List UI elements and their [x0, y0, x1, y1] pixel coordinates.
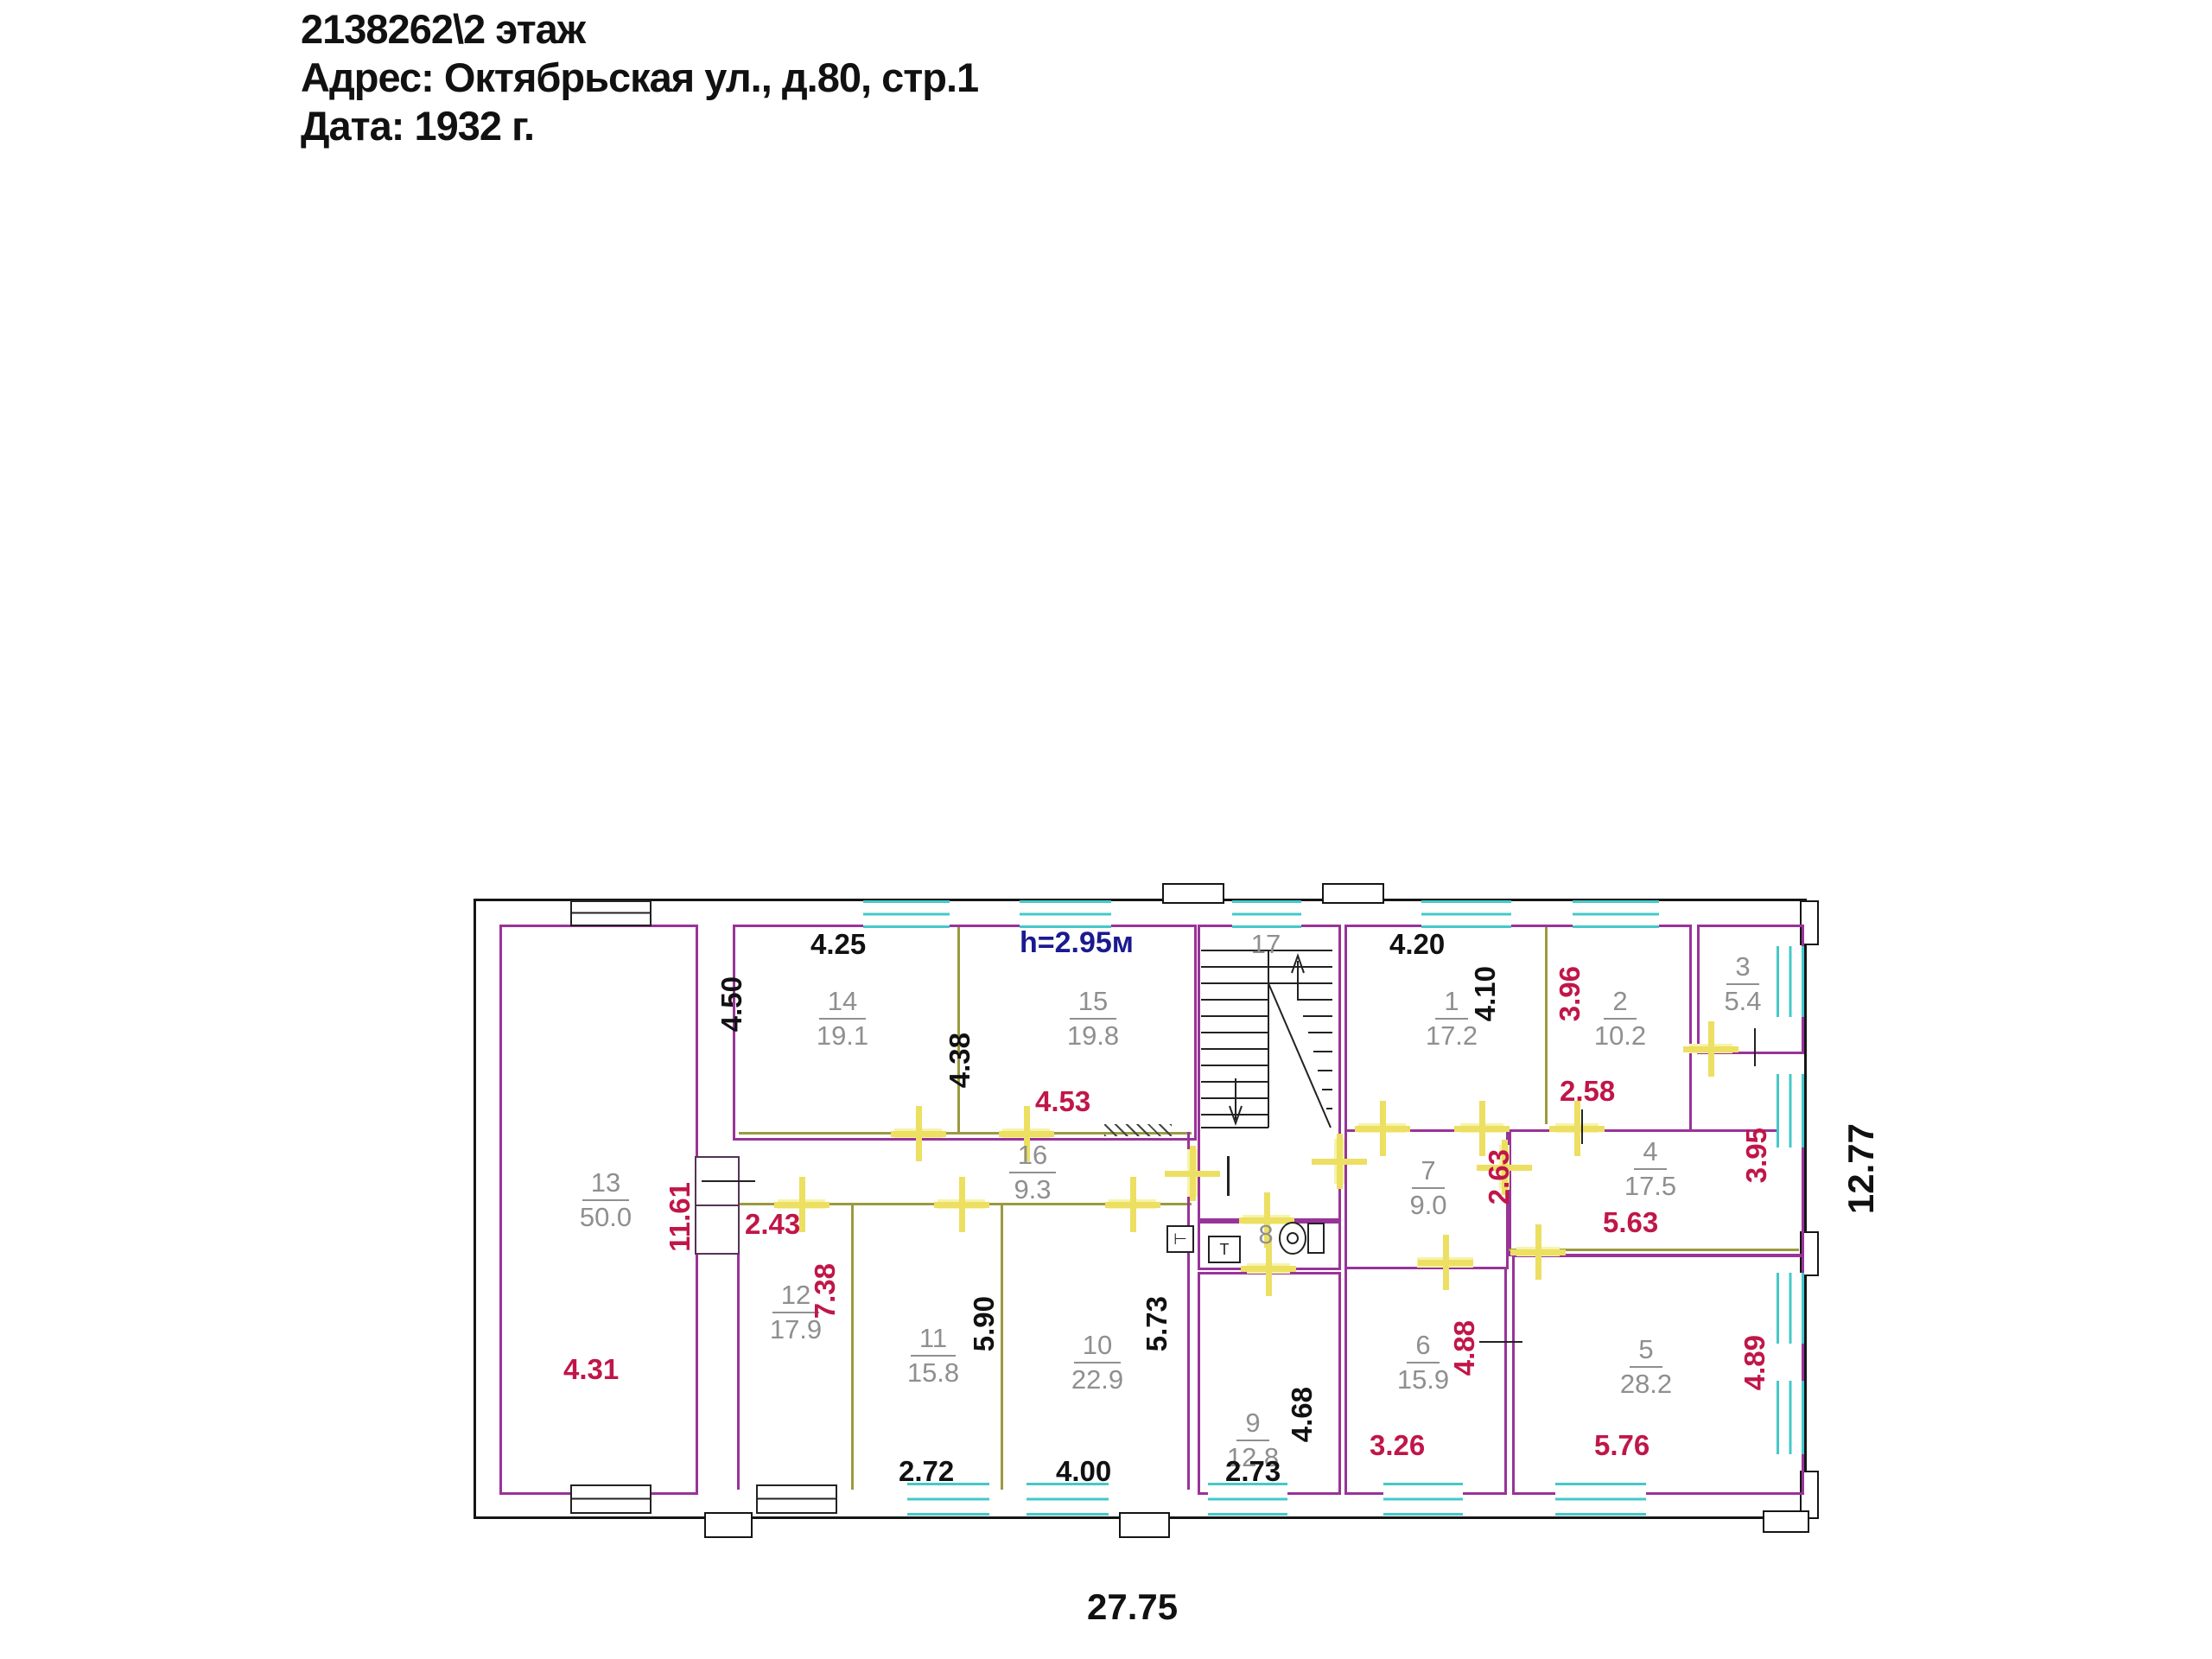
- room-label-16: 16 9.3: [985, 1141, 1080, 1205]
- dim-r15-bottom: 4.53: [1035, 1085, 1090, 1118]
- wall-notch: [704, 1512, 753, 1538]
- dim-r11-bottom: 2.72: [899, 1455, 954, 1488]
- dim-r13-width: 4.31: [563, 1353, 619, 1386]
- window: [756, 1484, 837, 1514]
- room-label-14: 14 19.1: [795, 987, 890, 1051]
- dim-r15-left: 4.38: [944, 1033, 976, 1088]
- plan-title: 2138262\2 этаж: [301, 5, 978, 54]
- window: [1777, 1074, 1804, 1147]
- window: [1232, 900, 1301, 928]
- plan-header: 2138262\2 этаж Адрес: Октябрьская ул., д…: [301, 5, 978, 150]
- door-opening: [1334, 1139, 1344, 1184]
- dim-r1-right: 4.10: [1469, 966, 1502, 1021]
- room-label-17: 17: [1218, 930, 1313, 961]
- fixture-icon: ⊢: [1166, 1225, 1194, 1253]
- hatched-wall: [1104, 1124, 1172, 1136]
- dim-r9-right: 4.68: [1286, 1387, 1319, 1442]
- dim-r9-bottom: 2.73: [1225, 1455, 1281, 1488]
- dim-r14-top: 4.25: [810, 928, 866, 961]
- window: [570, 1484, 652, 1514]
- door-opening: [1247, 1263, 1290, 1274]
- dimension-tick: [702, 1180, 755, 1182]
- window: [1573, 900, 1659, 928]
- dim-r2-left: 3.96: [1554, 966, 1586, 1021]
- partition-11-10: [1001, 1203, 1003, 1490]
- dim-r6-left: 4.88: [1448, 1320, 1481, 1376]
- door-opening: [1187, 1149, 1198, 1197]
- window: [570, 900, 652, 926]
- dim-r5-bottom: 5.76: [1594, 1429, 1649, 1462]
- partition-14-15: [957, 927, 960, 1133]
- dim-r4-right: 3.95: [1740, 1128, 1773, 1183]
- dim-r14-left: 4.50: [715, 976, 748, 1032]
- door-opening: [1417, 1257, 1473, 1268]
- ceiling-height-note: h=2.95м: [1020, 926, 1134, 960]
- door-opening: [938, 1199, 985, 1209]
- dim-r4-bottom: 5.63: [1603, 1206, 1658, 1239]
- wall-notch: [1119, 1512, 1170, 1538]
- room-label-15: 15 19.8: [1046, 987, 1141, 1051]
- window: [1383, 1483, 1463, 1516]
- room-label-3: 3 5.4: [1695, 952, 1790, 1016]
- door-opening: [1460, 1123, 1503, 1133]
- window: [1555, 1483, 1646, 1516]
- wall-pilaster: [1162, 883, 1224, 904]
- floor-plan-page: { "header": { "title": "2138262\\2 этаж"…: [0, 0, 2212, 1659]
- dim-r5-right: 4.89: [1738, 1335, 1771, 1390]
- room-label-8: 8: [1218, 1220, 1313, 1251]
- window: [1777, 1273, 1804, 1344]
- room-label-7: 7 9.0: [1381, 1156, 1476, 1220]
- door-opening: [1689, 1044, 1732, 1053]
- dim-r10-bottom: 4.00: [1056, 1455, 1111, 1488]
- room-label-2: 2 10.2: [1573, 987, 1668, 1051]
- window: [1421, 900, 1511, 928]
- dim-r12-top: 2.43: [745, 1208, 800, 1241]
- door-opening: [1555, 1123, 1599, 1133]
- room-label-13: 13 50.0: [558, 1168, 653, 1232]
- room-label-4: 4 17.5: [1603, 1137, 1698, 1201]
- dim-r12-left: 7.38: [809, 1263, 842, 1319]
- wall-pilaster: [1322, 883, 1384, 904]
- door-opening: [1516, 1247, 1560, 1256]
- dim-r11-right: 5.90: [968, 1296, 1001, 1351]
- partition-12-11: [851, 1203, 854, 1490]
- plan-date: Дата: 1932 г.: [301, 102, 978, 150]
- door-opening: [1358, 1123, 1406, 1133]
- door-leaf-box: [695, 1205, 740, 1255]
- dim-r2-bottom: 2.58: [1560, 1075, 1615, 1108]
- room-label-11: 11 15.8: [886, 1324, 981, 1388]
- door-opening: [894, 1128, 942, 1138]
- dim-r10-right: 5.73: [1141, 1296, 1173, 1351]
- window: [1777, 1381, 1804, 1454]
- wall-notch: [1763, 1510, 1809, 1533]
- room-label-5: 5 28.2: [1599, 1335, 1694, 1399]
- dimension-tick: [1479, 1341, 1522, 1343]
- partition-1-2: [1545, 927, 1548, 1124]
- dimension-tick: [1581, 1109, 1583, 1144]
- dimension-tick: [1754, 1028, 1756, 1066]
- dim-total-width: 27.75: [1087, 1586, 1178, 1628]
- dim-r6-bottom: 3.26: [1370, 1429, 1425, 1462]
- door-opening: [1002, 1128, 1050, 1138]
- window: [1020, 900, 1111, 928]
- dim-r1-top: 4.20: [1389, 928, 1445, 961]
- room-label-10: 10 22.9: [1050, 1331, 1145, 1395]
- dim-total-height: 12.77: [1840, 1123, 1882, 1214]
- window: [863, 900, 950, 928]
- dim-r13-right: 11.61: [664, 1182, 696, 1252]
- dim-r4-left: 2.63: [1483, 1149, 1516, 1205]
- stairs-icon: [1201, 949, 1332, 1132]
- plan-address: Адрес: Октябрьская ул., д.80, стр.1: [301, 54, 978, 102]
- dimension-tick: [1227, 1156, 1230, 1196]
- door-opening: [1109, 1199, 1156, 1209]
